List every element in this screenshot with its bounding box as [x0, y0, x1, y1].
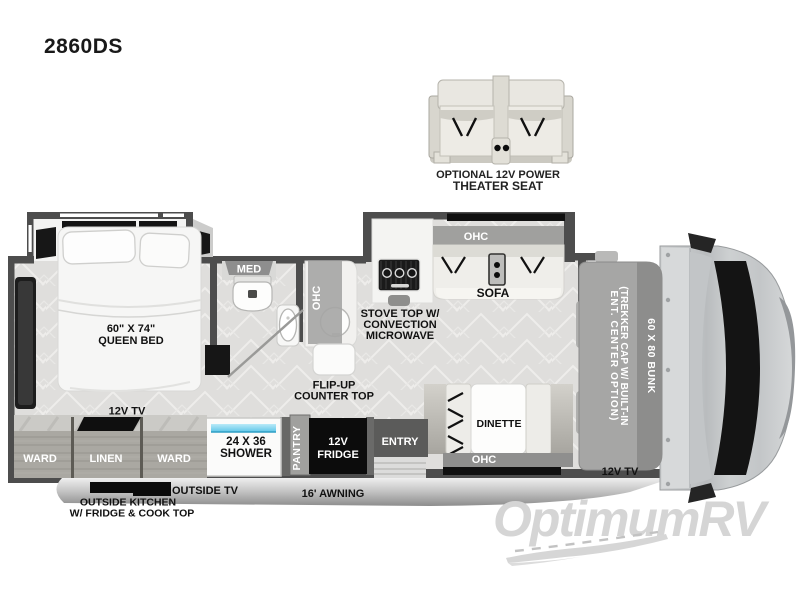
- svg-text:LINEN: LINEN: [90, 453, 123, 465]
- svg-text:SHOWER: SHOWER: [220, 448, 272, 460]
- svg-text:WARD: WARD: [157, 453, 191, 465]
- svg-text:SOFA: SOFA: [477, 286, 510, 300]
- svg-text:12V: 12V: [328, 436, 348, 448]
- svg-text:12V TV: 12V TV: [602, 466, 639, 478]
- svg-text:60" X 74": 60" X 74": [107, 323, 155, 335]
- svg-text:THEATER SEAT: THEATER SEAT: [453, 179, 544, 193]
- svg-text:ENT. CENTER OPTION): ENT. CENTER OPTION): [608, 291, 619, 422]
- svg-text:PANTRY: PANTRY: [291, 426, 303, 471]
- svg-text:OHC: OHC: [311, 286, 323, 311]
- svg-text:QUEEN BED: QUEEN BED: [98, 335, 163, 347]
- svg-text:60 X 80 BUNK: 60 X 80 BUNK: [645, 318, 657, 393]
- svg-text:OUTSIDE TV: OUTSIDE TV: [172, 485, 239, 497]
- svg-text:OHC: OHC: [464, 231, 489, 243]
- svg-text:OptimumRV: OptimumRV: [493, 491, 770, 547]
- svg-text:MICROWAVE: MICROWAVE: [366, 330, 434, 342]
- svg-text:16' AWNING: 16' AWNING: [302, 488, 365, 500]
- svg-text:MED: MED: [237, 264, 262, 276]
- svg-text:DINETTE: DINETTE: [477, 418, 522, 430]
- svg-text:COUNTER TOP: COUNTER TOP: [294, 391, 374, 403]
- svg-text:W/ FRIDGE & COOK TOP: W/ FRIDGE & COOK TOP: [70, 508, 195, 520]
- svg-text:FRIDGE: FRIDGE: [317, 449, 359, 461]
- svg-text:WARD: WARD: [23, 453, 57, 465]
- svg-text:2860DS: 2860DS: [44, 35, 123, 58]
- svg-text:OHC: OHC: [472, 454, 497, 466]
- svg-text:24 X 36: 24 X 36: [226, 436, 266, 448]
- svg-text:12V TV: 12V TV: [109, 406, 146, 418]
- svg-text:ENTRY: ENTRY: [382, 436, 420, 448]
